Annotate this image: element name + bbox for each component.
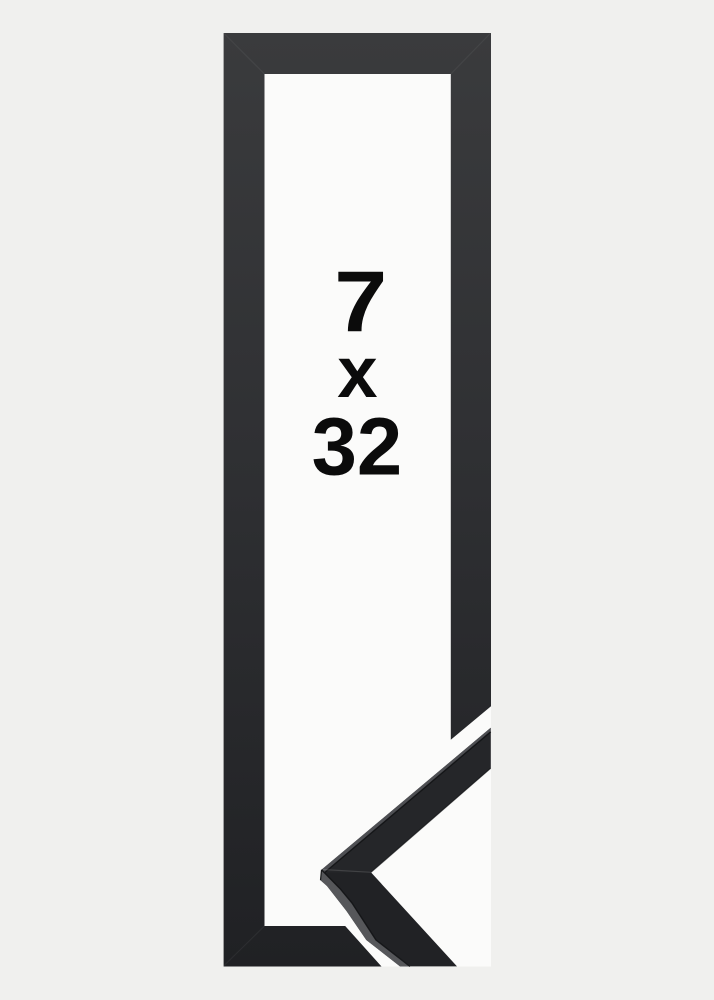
svg-text:32: 32 [312, 402, 403, 493]
